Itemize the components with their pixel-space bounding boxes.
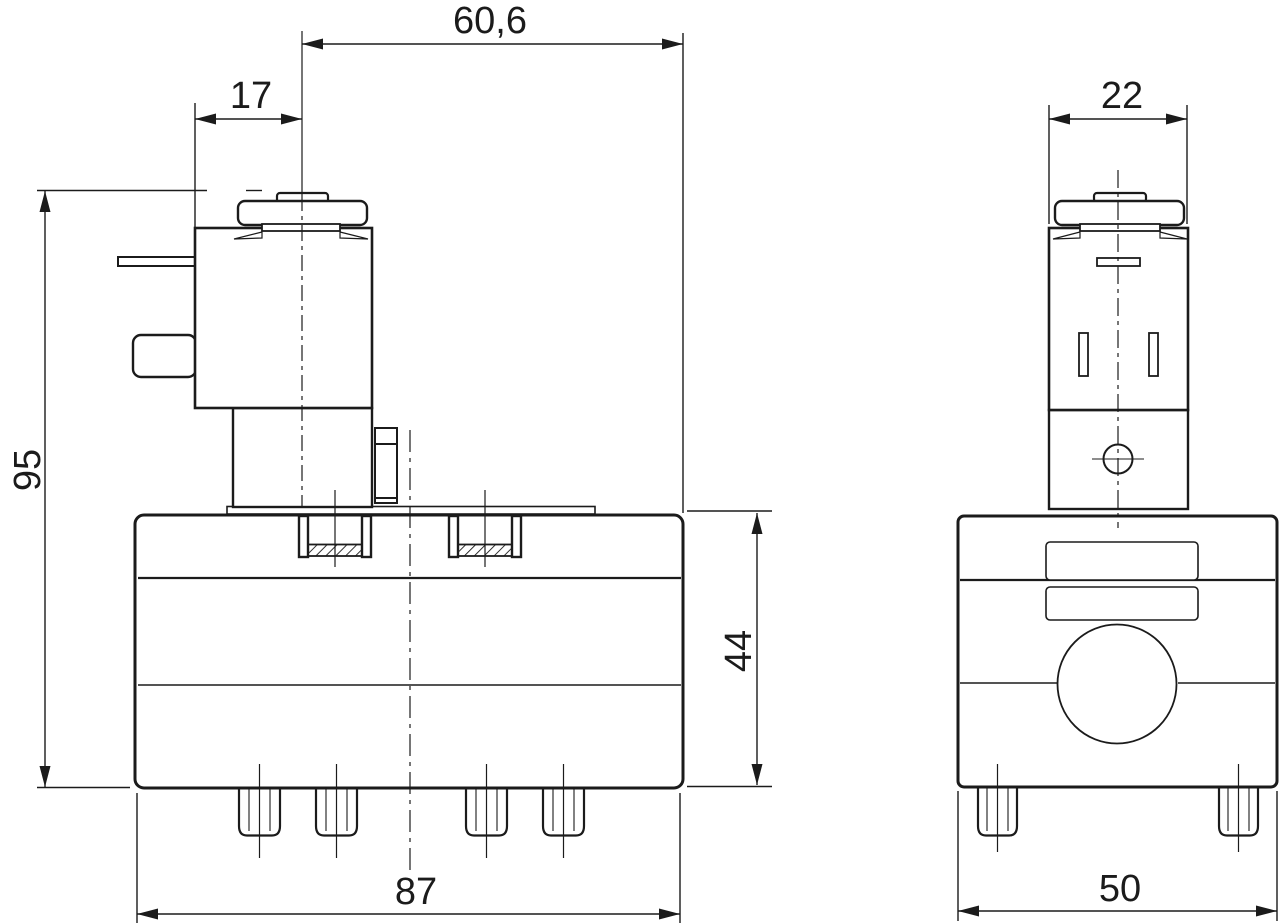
dim-total-height-label: 95 (7, 449, 49, 491)
side-clip (375, 428, 397, 503)
side-valve-body (135, 515, 683, 788)
dimension-body-width: 87 (137, 793, 680, 923)
front-coil-slot-left (1079, 333, 1088, 376)
front-label-plate-2 (1046, 587, 1198, 620)
front-coil-slot-right (1149, 333, 1158, 376)
dimension-front-body-width: 50 (958, 791, 1277, 921)
front-view: 22 50 (958, 75, 1277, 921)
side-view: 60,6 17 95 44 87 (7, 0, 772, 923)
knob-body (1055, 201, 1184, 225)
stud-thread-lines (987, 788, 1249, 831)
dim-coil-width-label: 17 (230, 75, 272, 117)
stud-thread-lines (249, 788, 574, 831)
front-studs (978, 787, 1258, 836)
knob-plate (1080, 224, 1160, 231)
dim-body-width-label: 87 (395, 871, 437, 913)
dim-front-body-width-label: 50 (1099, 868, 1141, 910)
dim-front-coil-width-label: 22 (1101, 75, 1143, 117)
side-connector-tab (133, 335, 196, 377)
front-port-circle (1058, 625, 1177, 744)
side-spade-terminal (118, 257, 196, 266)
front-valve-body (958, 516, 1277, 787)
drawing-canvas: 60,6 17 95 44 87 (0, 0, 1280, 924)
side-coil (195, 228, 372, 408)
knob-plate (262, 224, 340, 231)
dim-top-span-label: 60,6 (453, 0, 527, 42)
side-body-outline (135, 515, 683, 788)
side-studs (239, 787, 584, 836)
dim-body-height-label: 44 (718, 630, 760, 672)
technical-drawing: 60,6 17 95 44 87 (0, 0, 1280, 924)
dimension-body-height: 44 (687, 511, 772, 787)
front-coil (1049, 228, 1188, 410)
front-label-plate-1 (1046, 542, 1198, 580)
